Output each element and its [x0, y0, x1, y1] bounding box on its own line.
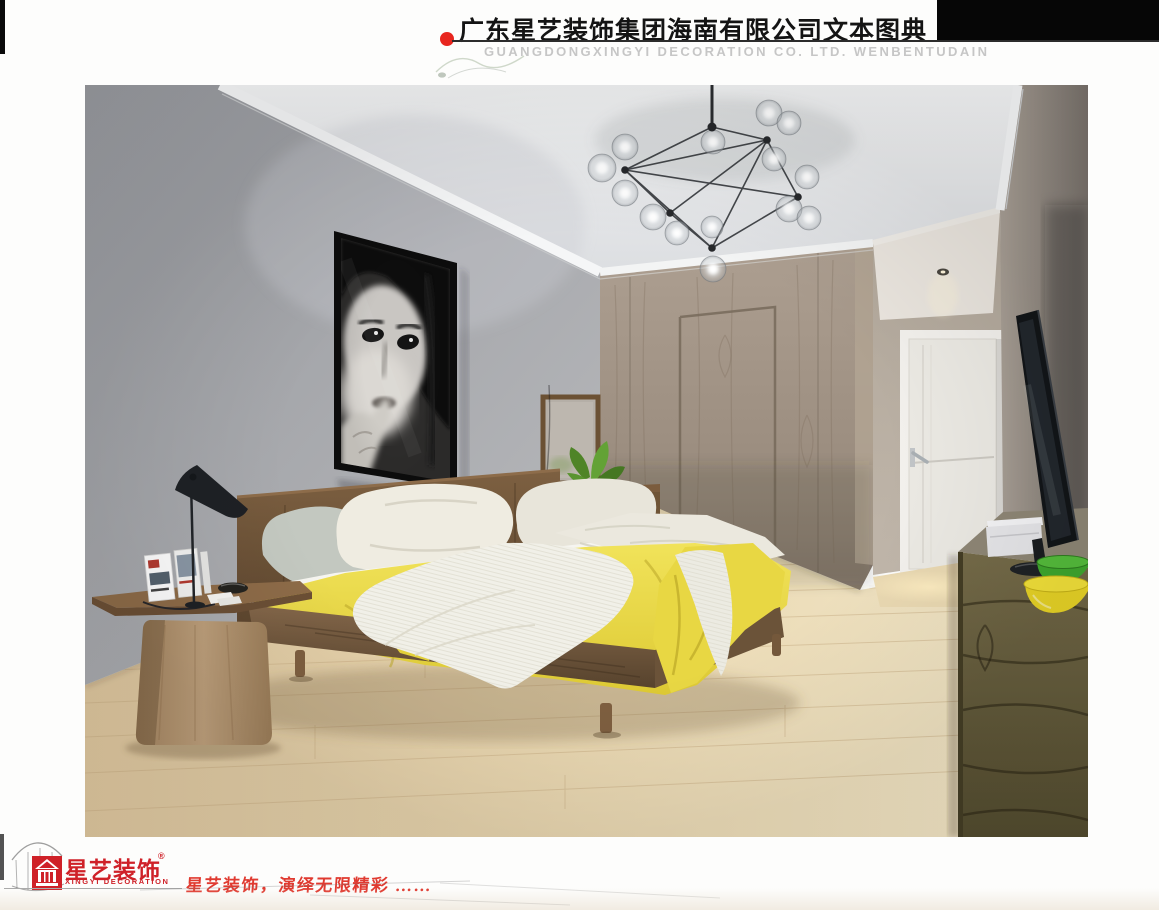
header-rule [452, 40, 1159, 42]
vignette [85, 85, 1088, 837]
document-page: { "page": {"width": 1159, "height": 910,… [0, 0, 1159, 910]
registered-mark: ® [158, 851, 165, 861]
header-watermark: GUANGDONGXINGYI DECORATION CO. LTD. WENB… [484, 44, 989, 59]
top-left-black-bar [0, 0, 5, 54]
top-right-black-bar [937, 0, 1159, 40]
bedroom-render-image [85, 85, 1088, 837]
xingyi-logo-icon [32, 856, 62, 890]
header-sketch-doodle [428, 42, 558, 84]
bottom-paper-tint [0, 888, 1159, 910]
